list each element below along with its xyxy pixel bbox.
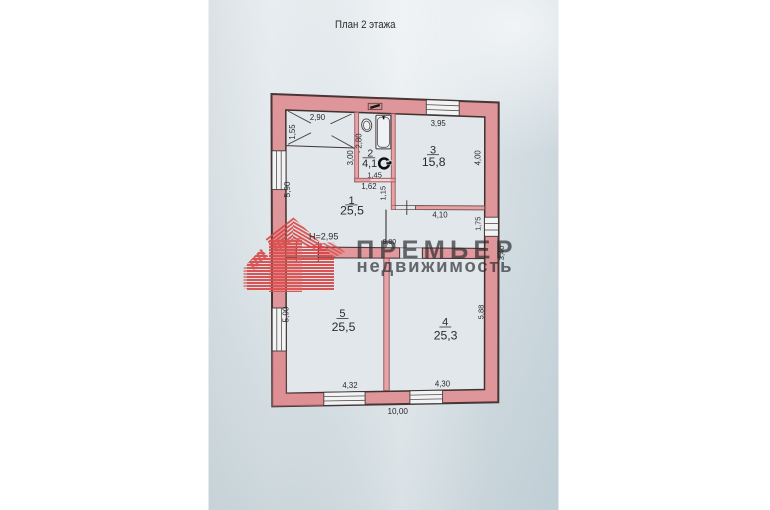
svg-text:1,45: 1,45: [367, 171, 382, 180]
svg-text:3,40: 3,40: [497, 246, 506, 261]
svg-text:5,90: 5,90: [283, 181, 292, 197]
svg-text:1,62: 1,62: [361, 182, 376, 191]
svg-text:3,95: 3,95: [431, 119, 447, 128]
svg-text:1,15: 1,15: [378, 186, 387, 201]
svg-text:8,80: 8,80: [383, 239, 397, 246]
svg-text:4,00: 4,00: [473, 150, 482, 166]
svg-text:25,3: 25,3: [434, 328, 458, 342]
svg-text:4,10: 4,10: [432, 211, 448, 220]
svg-text:4,1: 4,1: [362, 158, 377, 170]
svg-text:4,32: 4,32: [342, 381, 357, 390]
svg-text:10,00: 10,00: [387, 407, 408, 416]
svg-text:5,90: 5,90: [282, 306, 291, 322]
svg-text:1,75: 1,75: [474, 217, 483, 231]
svg-text:Н=2,95: Н=2,95: [309, 232, 338, 242]
svg-text:2,80: 2,80: [355, 133, 364, 149]
svg-text:25,5: 25,5: [332, 320, 356, 334]
svg-text:4,30: 4,30: [435, 379, 451, 388]
svg-text:3,00: 3,00: [346, 150, 355, 166]
svg-text:1,55: 1,55: [288, 124, 297, 140]
svg-text:25,5: 25,5: [340, 203, 364, 217]
svg-text:План 2 этажа: План 2 этажа: [335, 19, 396, 31]
svg-text:2,90: 2,90: [310, 113, 326, 122]
svg-text:5,88: 5,88: [476, 305, 485, 320]
svg-text:15,8: 15,8: [422, 155, 446, 169]
